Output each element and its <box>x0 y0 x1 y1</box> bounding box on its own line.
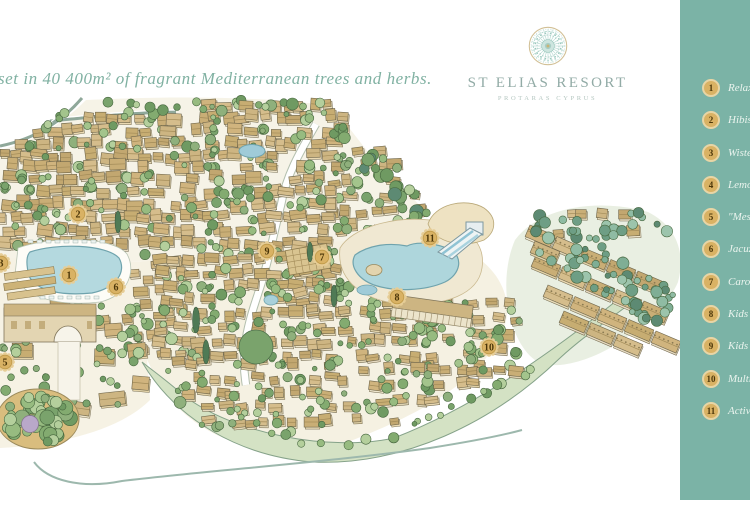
svg-text:11: 11 <box>425 234 434 245</box>
svg-text:7: 7 <box>320 253 325 264</box>
svg-text:10: 10 <box>484 343 494 354</box>
svg-text:5: 5 <box>3 358 8 369</box>
svg-text:8: 8 <box>395 293 400 304</box>
svg-text:2: 2 <box>76 210 81 221</box>
svg-text:1: 1 <box>67 271 72 282</box>
svg-text:9: 9 <box>265 247 270 258</box>
svg-text:6: 6 <box>114 283 119 294</box>
svg-text:3: 3 <box>0 259 4 270</box>
